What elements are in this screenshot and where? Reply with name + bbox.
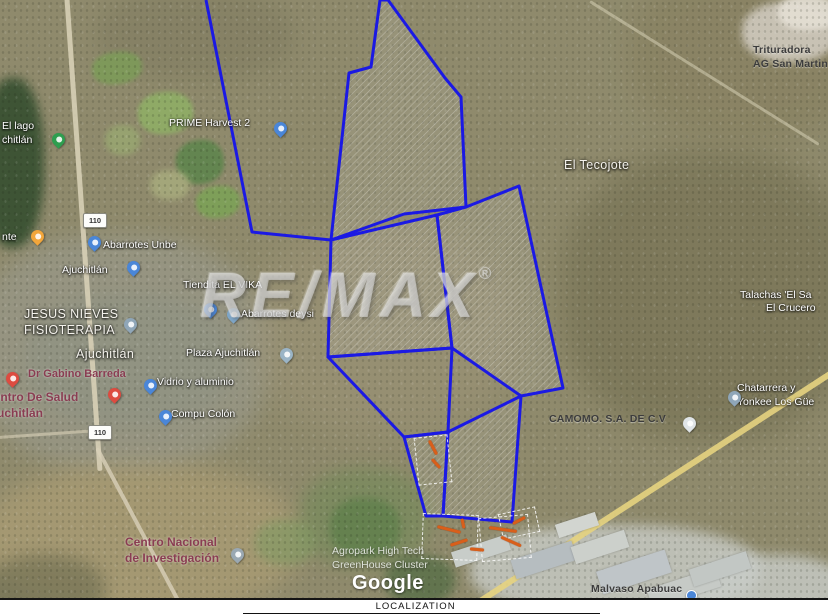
map-label: Chatarrera yYonkee Los Güe xyxy=(737,382,814,409)
route-shield: 110 xyxy=(83,213,107,228)
map-label: PRIME Harvest 2 xyxy=(169,117,250,131)
map-label: Agropark High TechGreenHouse Cluster xyxy=(332,545,428,572)
map-pin[interactable] xyxy=(686,590,697,598)
caption-underline xyxy=(243,613,600,614)
map-label: Dr Gabino Barreda xyxy=(28,367,126,381)
sketch-box xyxy=(421,513,479,561)
map-label: nte xyxy=(2,231,17,245)
registered-mark-icon: ® xyxy=(479,264,492,283)
satellite-map[interactable]: TrituradoraAG San MartinPRIME Harvest 2E… xyxy=(0,0,828,598)
map-label: CAMOMO. S.A. DE C.V xyxy=(549,413,666,427)
map-label: El lagochitlán xyxy=(2,120,34,147)
map-label: TrituradoraAG San Martin xyxy=(753,44,828,71)
map-label: Talachas 'El Sa xyxy=(740,289,811,303)
map-label: El Tecojote xyxy=(564,157,629,173)
map-screenshot: TrituradoraAG San MartinPRIME Harvest 2E… xyxy=(0,0,828,615)
remax-watermark: RE/MAX® xyxy=(200,258,491,332)
map-label: Ajuchitlán xyxy=(76,346,134,362)
map-label: Abarrotes Unbe xyxy=(103,239,177,253)
parcel-boundary xyxy=(443,396,521,522)
map-label: Centro De SaludAjuchitlán xyxy=(0,390,78,421)
map-label: Plaza Ajuchitlán xyxy=(186,347,260,361)
caption-label: LOCALIZATION xyxy=(376,601,456,612)
map-label: Malvaso Apabuac xyxy=(591,583,682,597)
map-label: JESUS NIEVESFISIOTERAPIA xyxy=(24,306,118,339)
caption-bar: LOCALIZATION xyxy=(0,598,828,615)
parcel-boundary xyxy=(331,0,466,240)
map-label: Ajuchitlán xyxy=(62,264,108,278)
map-label: El Crucero xyxy=(766,302,816,316)
map-label: Vidrio y aluminio xyxy=(157,376,234,390)
route-shield: 110 xyxy=(88,425,112,440)
map-label: Compu Colón xyxy=(171,408,235,422)
parcel-boundary xyxy=(328,348,452,437)
map-label: Centro Nacionalde Investigación xyxy=(125,535,219,566)
google-logo[interactable]: Google xyxy=(352,572,424,595)
